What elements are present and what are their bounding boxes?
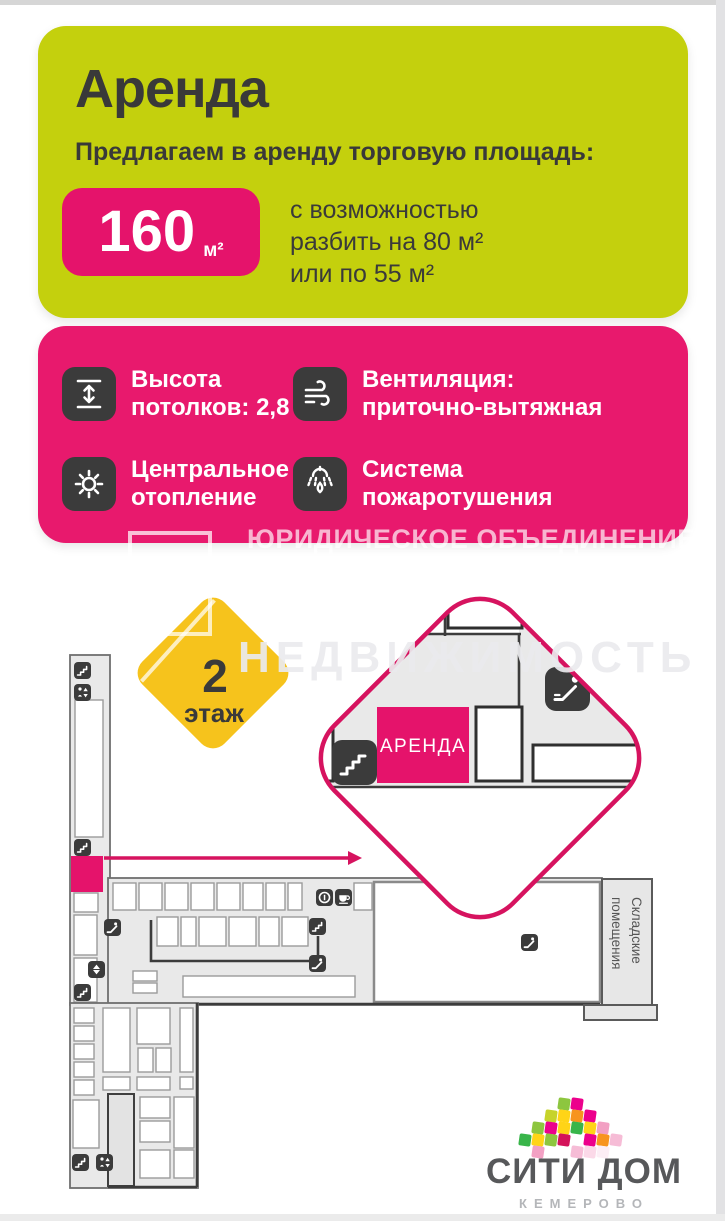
room (133, 983, 157, 993)
room (138, 1048, 153, 1072)
info-icon (316, 889, 333, 906)
stairs-icon (332, 740, 377, 785)
rental-unit-label: АРЕНДА (380, 736, 466, 757)
cafe-icon (335, 889, 352, 906)
escalator-icon (521, 934, 538, 951)
room (103, 1008, 130, 1072)
elevator-icon (74, 684, 91, 701)
callout-mini-plan: АРЕНДА (303, 572, 674, 788)
room (199, 917, 226, 946)
room (74, 915, 97, 955)
room (288, 883, 302, 910)
room (74, 893, 98, 912)
logo-subtitle: КЕМЕРОВО (468, 1196, 700, 1211)
room (133, 971, 157, 981)
citydom-logo: СИТИ ДОМ КЕМЕРОВО (468, 1086, 700, 1216)
room (243, 883, 263, 910)
escalator-icon (545, 667, 590, 711)
room (74, 1008, 94, 1023)
room (181, 917, 196, 946)
room (137, 1077, 170, 1090)
room (157, 917, 178, 946)
room (476, 707, 522, 781)
storage-label-line2: помещения (609, 897, 624, 969)
room (266, 883, 285, 910)
room (113, 883, 136, 910)
room (644, 747, 674, 781)
room (174, 1150, 194, 1178)
room (533, 745, 640, 781)
room (139, 883, 162, 910)
stairs-icon (74, 662, 91, 679)
corridor (303, 633, 521, 707)
room (191, 883, 214, 910)
logo-mosaic (468, 1086, 700, 1152)
room (180, 1008, 193, 1072)
stairs-icon (72, 1154, 89, 1171)
room (74, 1026, 94, 1041)
room (217, 883, 240, 910)
escalator-icon (309, 955, 326, 972)
floor-plan: Складские помещения (0, 0, 725, 1221)
stairs-icon (74, 839, 91, 856)
logo-tile (544, 1133, 558, 1147)
room (354, 883, 372, 910)
room (448, 585, 522, 628)
storage-label-line1: Складские (629, 897, 644, 964)
room (140, 1150, 170, 1178)
room (156, 1048, 171, 1072)
stairs-icon (74, 984, 91, 1001)
rental-unit-marker (71, 856, 103, 892)
logo-tile (570, 1121, 584, 1135)
logo-title: СИТИ ДОМ (468, 1152, 700, 1192)
room (140, 1097, 170, 1118)
room (74, 1044, 94, 1059)
elevator-icon (96, 1154, 113, 1171)
corridor (108, 1094, 134, 1186)
room (282, 917, 308, 946)
stairs-icon (309, 918, 326, 935)
logo-tile (518, 1133, 532, 1147)
room (174, 1097, 194, 1148)
storage-block-tab (584, 1005, 657, 1020)
logo-tile (557, 1133, 571, 1147)
floor-label: этаж (184, 698, 244, 728)
room (165, 883, 188, 910)
room (229, 917, 256, 946)
room (74, 1080, 94, 1095)
room (183, 976, 355, 997)
room (140, 1121, 170, 1142)
room (75, 700, 103, 837)
callout-arrow-head (348, 851, 362, 865)
room (180, 1077, 193, 1089)
room (103, 1077, 130, 1090)
room (73, 1100, 99, 1148)
floor-number: 2 (202, 650, 228, 702)
room (74, 1062, 94, 1077)
flyer-page: Аренда Предлагаем в аренду торговую площ… (0, 0, 725, 1221)
escalator-icon (104, 919, 121, 936)
room (137, 1008, 170, 1044)
logo-tile (609, 1133, 623, 1147)
lift-icon (88, 961, 105, 978)
room (259, 917, 279, 946)
